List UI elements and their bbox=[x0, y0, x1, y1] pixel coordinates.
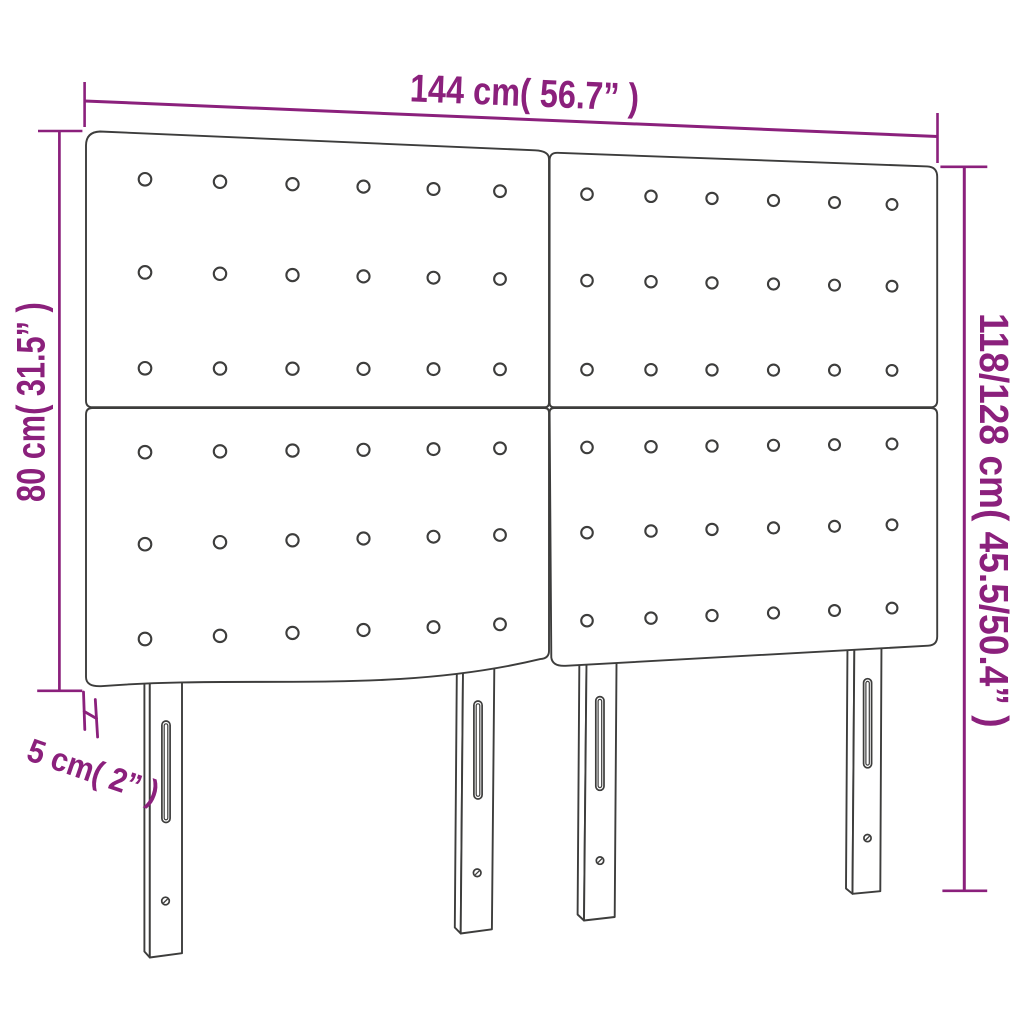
svg-text:118/128 cm( 45.5/50.4” ): 118/128 cm( 45.5/50.4” ) bbox=[971, 313, 1016, 728]
svg-text:80 cm( 31.5” ): 80 cm( 31.5” ) bbox=[8, 302, 53, 502]
